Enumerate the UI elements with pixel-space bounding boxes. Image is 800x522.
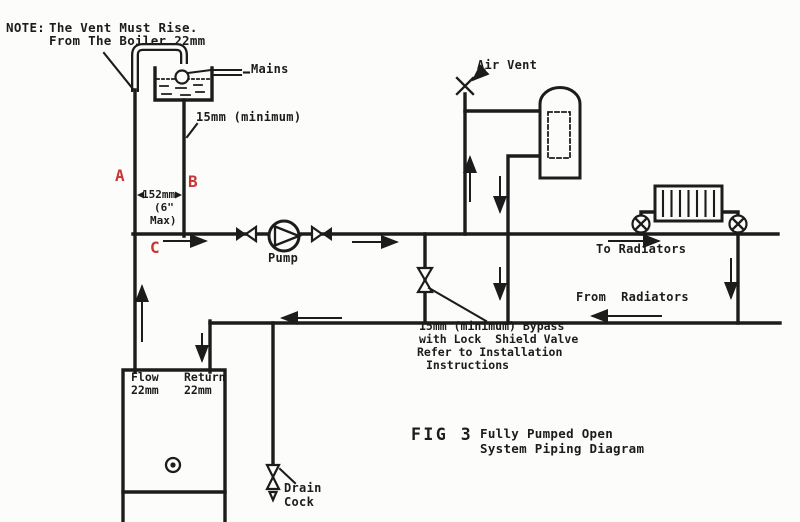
- figure-number: FIG 3: [411, 428, 473, 441]
- feed-size-label: 15mm (minimum): [196, 111, 301, 124]
- gate-valve-right-solid: [322, 227, 332, 241]
- gate-valve-right-hollow: [312, 227, 322, 241]
- to-radiators-label: To Radiators: [596, 243, 686, 256]
- radiator: [633, 186, 747, 233]
- mains-inlet-pipe: [212, 70, 241, 75]
- dimension-max-line1: (6": [154, 201, 174, 214]
- bypass-leader: [429, 288, 486, 321]
- caption-line2: System Piping Diagram: [480, 442, 644, 455]
- drain-cock-icon-bottom: [267, 477, 279, 489]
- float-arm: [188, 70, 211, 73]
- feed-expansion-tank: [155, 68, 249, 100]
- drain-cock: [267, 465, 279, 500]
- boiler-knob-dot: [170, 462, 175, 467]
- drain-label-line1: Drain: [284, 482, 322, 495]
- bypass-line4: Instructions: [426, 359, 509, 372]
- feed-size-leader: [187, 124, 197, 137]
- piping-diagram: NOTE: The Vent Must Rise. From The Boile…: [0, 0, 800, 522]
- mains-label: Mains: [251, 63, 289, 76]
- pump-label: Pump: [268, 252, 298, 265]
- water-dashes: [160, 85, 204, 95]
- drain-cock-spout: [270, 492, 277, 500]
- hot-water-cylinder: [540, 88, 580, 179]
- boiler-return-size: 22mm: [184, 384, 212, 397]
- caption-line1: Fully Pumped Open: [480, 427, 613, 440]
- drain-label-line2: Cock: [284, 496, 314, 509]
- point-a-label: A: [115, 169, 125, 182]
- note-leader: [104, 53, 133, 89]
- point-c-label: C: [150, 241, 160, 254]
- boiler-flow-size: 22mm: [131, 384, 159, 397]
- from-radiators-label: From Radiators: [576, 291, 689, 304]
- radiator-fins: [663, 191, 714, 216]
- cylinder-return-pipe: [508, 156, 540, 323]
- point-b-label: B: [188, 175, 198, 188]
- note-line2: From The Boiler 22mm: [49, 34, 206, 47]
- float-ball-icon: [176, 71, 189, 84]
- cylinder-outline: [540, 88, 580, 179]
- pipework: [133, 90, 780, 466]
- diagram-linework: [0, 0, 800, 522]
- note-prefix: NOTE:: [6, 21, 45, 34]
- air-vent-label: Air Vent: [477, 59, 537, 72]
- gate-valve-left-hollow: [246, 227, 256, 241]
- dimension-152mm: 152mm: [142, 188, 175, 201]
- air-vent-icon: [457, 78, 473, 94]
- lockshield-valve-bottom: [418, 280, 432, 292]
- pump-icon: [269, 221, 299, 251]
- pump-assembly: [236, 221, 332, 251]
- dimension-max-line2: Max): [150, 214, 177, 227]
